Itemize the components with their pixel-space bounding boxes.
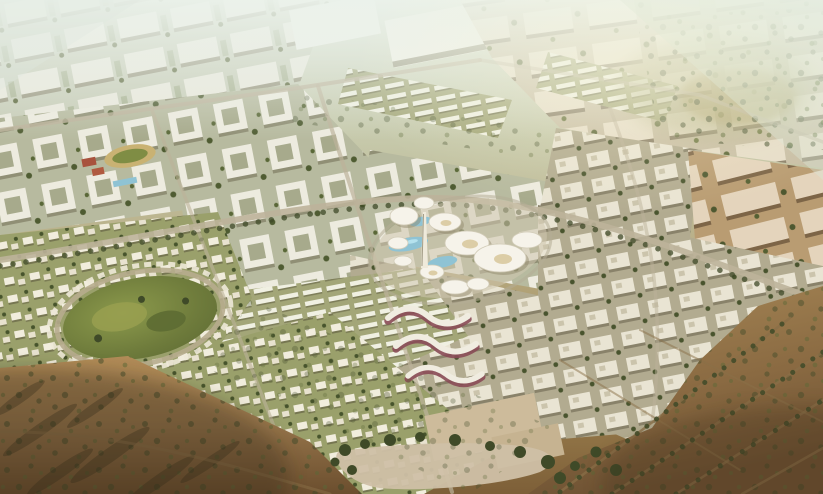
dome-courtyard — [462, 240, 478, 249]
dome — [512, 232, 542, 248]
dome — [441, 280, 469, 294]
dome — [390, 207, 418, 225]
dome — [467, 278, 489, 290]
render-svg: Bird's-eye architectural rendering of a … — [0, 0, 823, 494]
dome-courtyard — [441, 220, 452, 226]
dome-courtyard — [429, 271, 438, 276]
aerial-city-render: Bird's-eye architectural rendering of a … — [0, 0, 823, 494]
screenshot-canvas: Bird's-eye architectural rendering of a … — [0, 0, 823, 494]
dome — [388, 237, 408, 249]
dome — [394, 256, 412, 266]
dome — [414, 197, 434, 209]
dome-courtyard — [494, 254, 512, 264]
